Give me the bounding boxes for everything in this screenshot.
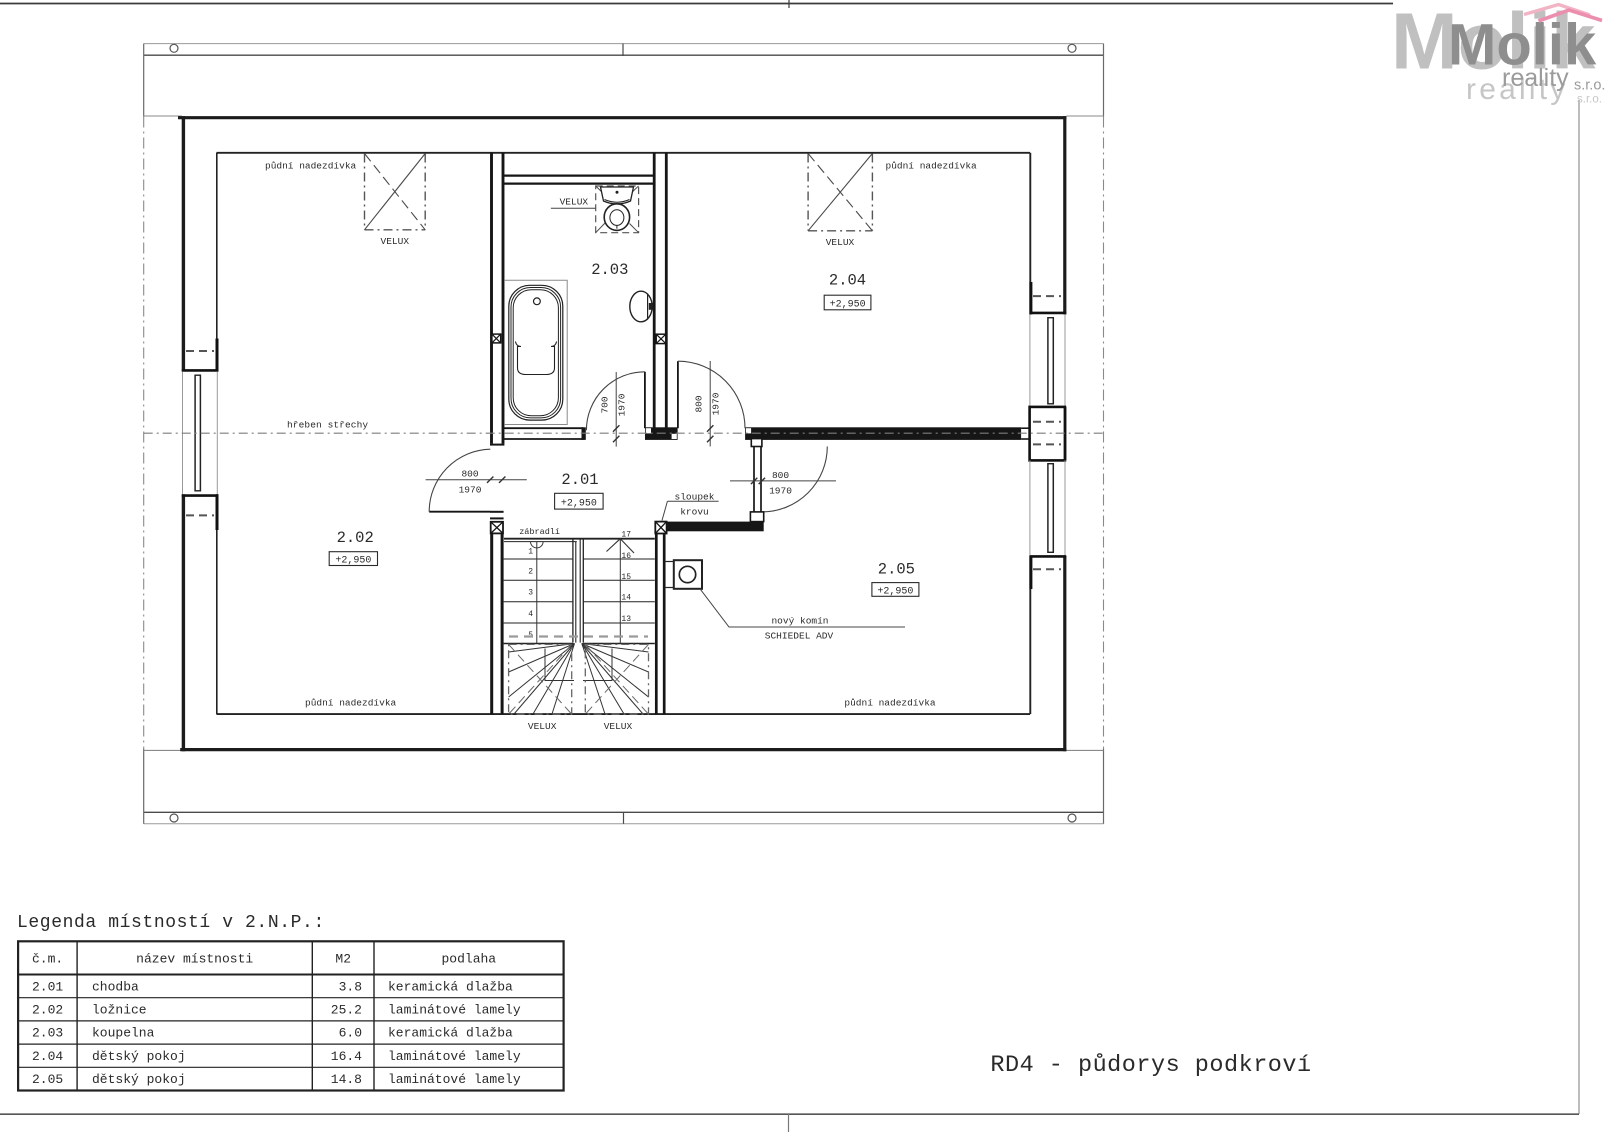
svg-text:+2,950: +2,950	[877, 587, 913, 598]
svg-text:4: 4	[528, 610, 533, 619]
svg-text:3: 3	[528, 589, 533, 598]
svg-text:název místnosti: název místnosti	[136, 952, 253, 967]
svg-text:půdní nadezdívka: půdní nadezdívka	[305, 698, 397, 709]
svg-text:VELUX: VELUX	[381, 236, 410, 247]
svg-text:2.02: 2.02	[337, 529, 374, 547]
svg-text:2: 2	[528, 568, 533, 577]
svg-text:č.m.: č.m.	[32, 952, 63, 967]
svg-text:hřeben střechy: hřeben střechy	[287, 420, 368, 431]
svg-text:keramická dlažba: keramická dlažba	[388, 1026, 513, 1041]
svg-text:s.r.o.: s.r.o.	[1577, 94, 1602, 106]
svg-text:800: 800	[461, 469, 478, 480]
svg-text:14.8: 14.8	[331, 1072, 362, 1087]
svg-text:2.03: 2.03	[32, 1026, 63, 1041]
svg-text:s.r.o.: s.r.o.	[1574, 78, 1605, 94]
svg-text:1: 1	[528, 548, 533, 557]
svg-text:dětský pokoj: dětský pokoj	[92, 1049, 186, 1064]
svg-text:800: 800	[694, 395, 705, 412]
svg-text:2.03: 2.03	[591, 261, 628, 279]
svg-text:1970: 1970	[769, 486, 792, 497]
svg-text:16: 16	[621, 552, 631, 561]
svg-text:ložnice: ložnice	[92, 1003, 147, 1018]
svg-text:5: 5	[528, 631, 533, 640]
svg-text:700: 700	[600, 396, 611, 413]
svg-text:15: 15	[621, 573, 631, 582]
svg-text:půdní nadezdívka: půdní nadezdívka	[886, 161, 978, 172]
svg-text:16.4: 16.4	[331, 1049, 362, 1064]
svg-text:2.05: 2.05	[878, 561, 915, 579]
svg-text:koupelna: koupelna	[92, 1026, 155, 1041]
svg-text:2.05: 2.05	[32, 1072, 63, 1087]
svg-text:laminátové lamely: laminátové lamely	[388, 1072, 521, 1087]
svg-text:2.02: 2.02	[32, 1003, 63, 1018]
svg-text:25.2: 25.2	[331, 1003, 362, 1018]
svg-text:chodba: chodba	[92, 979, 139, 994]
svg-text:podlaha: podlaha	[441, 952, 496, 967]
svg-text:2.04: 2.04	[829, 272, 866, 290]
svg-text:půdní nadezdívka: půdní nadezdívka	[265, 161, 357, 172]
svg-text:3.8: 3.8	[339, 979, 362, 994]
svg-text:1970: 1970	[711, 392, 722, 415]
svg-text:M2: M2	[335, 952, 351, 967]
svg-text:VELUX: VELUX	[826, 237, 855, 248]
svg-text:6.0: 6.0	[339, 1026, 362, 1041]
svg-text:VELUX: VELUX	[528, 721, 557, 732]
svg-text:keramická dlažba: keramická dlažba	[388, 979, 513, 994]
svg-text:SCHIEDEL ADV: SCHIEDEL ADV	[765, 631, 834, 642]
svg-text:1970: 1970	[617, 393, 628, 416]
svg-text:nový komín: nový komín	[771, 616, 828, 627]
svg-text:Legenda místností v 2.N.P.:: Legenda místností v 2.N.P.:	[17, 913, 325, 933]
svg-text:půdní nadezdívka: půdní nadezdívka	[844, 698, 936, 709]
svg-text:+2,950: +2,950	[335, 556, 371, 567]
svg-text:zábradlí: zábradlí	[519, 527, 560, 537]
svg-text:reality: reality	[1502, 64, 1569, 92]
svg-text:+2,950: +2,950	[830, 300, 866, 311]
svg-text:800: 800	[772, 470, 789, 481]
svg-text:+2,950: +2,950	[561, 498, 597, 509]
svg-text:1970: 1970	[459, 485, 482, 496]
svg-text:laminátové lamely: laminátové lamely	[388, 1003, 521, 1018]
svg-text:krovu: krovu	[680, 507, 709, 518]
svg-text:VELUX: VELUX	[560, 197, 589, 208]
svg-text:VELUX: VELUX	[604, 721, 633, 732]
svg-text:13: 13	[621, 615, 631, 624]
svg-text:14: 14	[621, 594, 631, 603]
svg-text:2.01: 2.01	[561, 471, 598, 489]
svg-text:dětský pokoj: dětský pokoj	[92, 1072, 186, 1087]
svg-text:2.04: 2.04	[32, 1049, 63, 1064]
svg-text:RD4 - půdorys podkroví: RD4 - půdorys podkroví	[990, 1052, 1311, 1079]
svg-text:17: 17	[621, 530, 631, 539]
svg-text:2.01: 2.01	[32, 979, 63, 994]
svg-text:laminátové lamely: laminátové lamely	[388, 1049, 521, 1064]
